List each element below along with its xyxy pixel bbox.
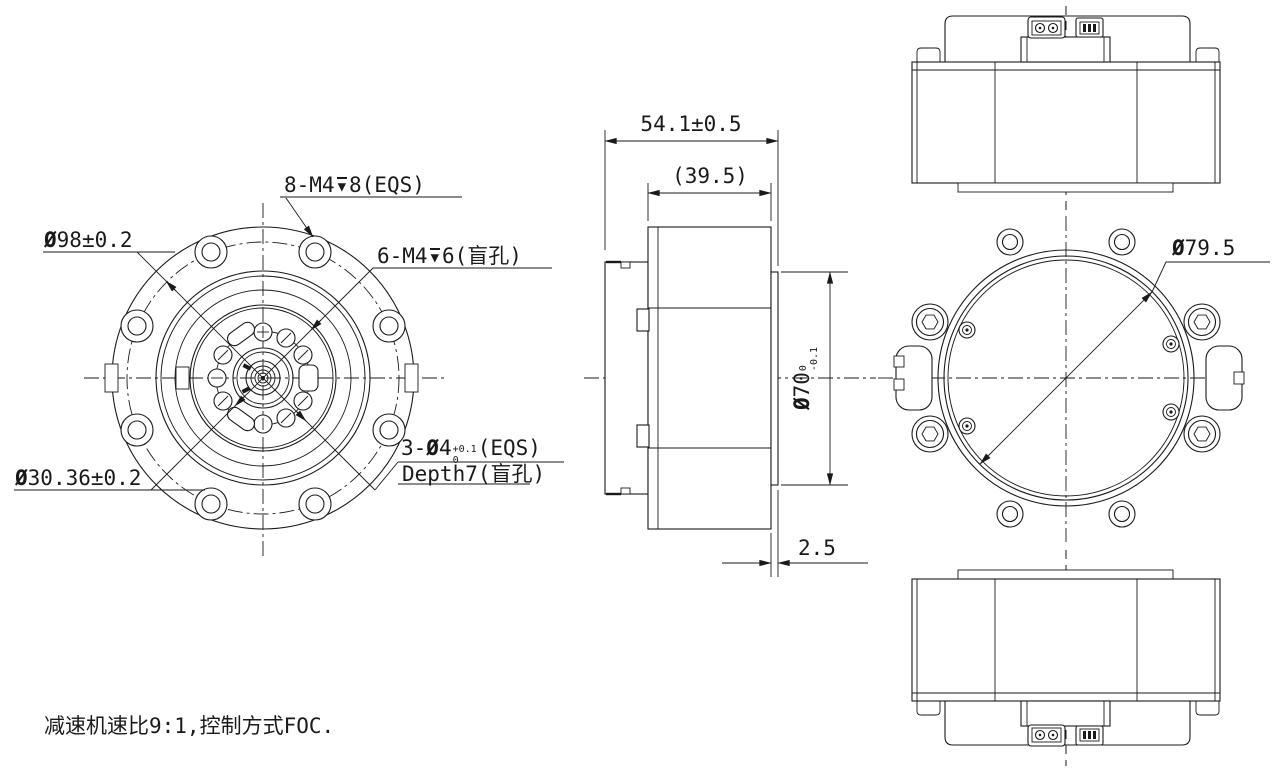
drawing-note: 减速机速比9:1,控制方式FOC. <box>44 716 334 737</box>
dim-flange-diameter: Ø700-0.1 <box>792 346 820 410</box>
rear-view <box>878 216 1270 542</box>
dim-flange-thickness: 2.5 <box>798 538 836 559</box>
bottom-view <box>912 550 1220 766</box>
top-view <box>912 6 1220 212</box>
side-view <box>584 130 876 577</box>
depth-symbol-icon: ▼ <box>337 177 347 194</box>
dim-rear-inner-diameter: Ø79.5 <box>1172 238 1235 259</box>
front-cutout-lower <box>225 405 257 434</box>
dim-overall-width: 54.1±0.5 <box>640 114 741 135</box>
depth-symbol-icon: ▼ <box>430 248 440 265</box>
dim-bolt-circle-30-36: Ø30.36±0.2 <box>15 468 141 489</box>
power-connector-bottom <box>1028 725 1065 746</box>
output-flange <box>771 272 778 485</box>
engineering-drawing: Ø98±0.2 Ø30.36±0.2 8-M4▼8(EQS) 6-M4▼6(盲孔… <box>0 0 1283 770</box>
signal-connector <box>1076 18 1103 37</box>
front-cutout-right <box>299 365 318 391</box>
dim-body-width: (39.5) <box>672 166 748 187</box>
dim-bolt-circle-98: Ø98±0.2 <box>44 230 133 251</box>
dim-pin-holes-depth: Depth7(盲孔) <box>402 464 545 485</box>
signal-connector-bottom <box>1076 726 1103 745</box>
dim-blind-holes: 6-M4▼6(盲孔) <box>377 246 522 267</box>
dim-mount-holes: 8-M4▼8(EQS) <box>284 175 425 196</box>
power-connector <box>1028 17 1065 38</box>
